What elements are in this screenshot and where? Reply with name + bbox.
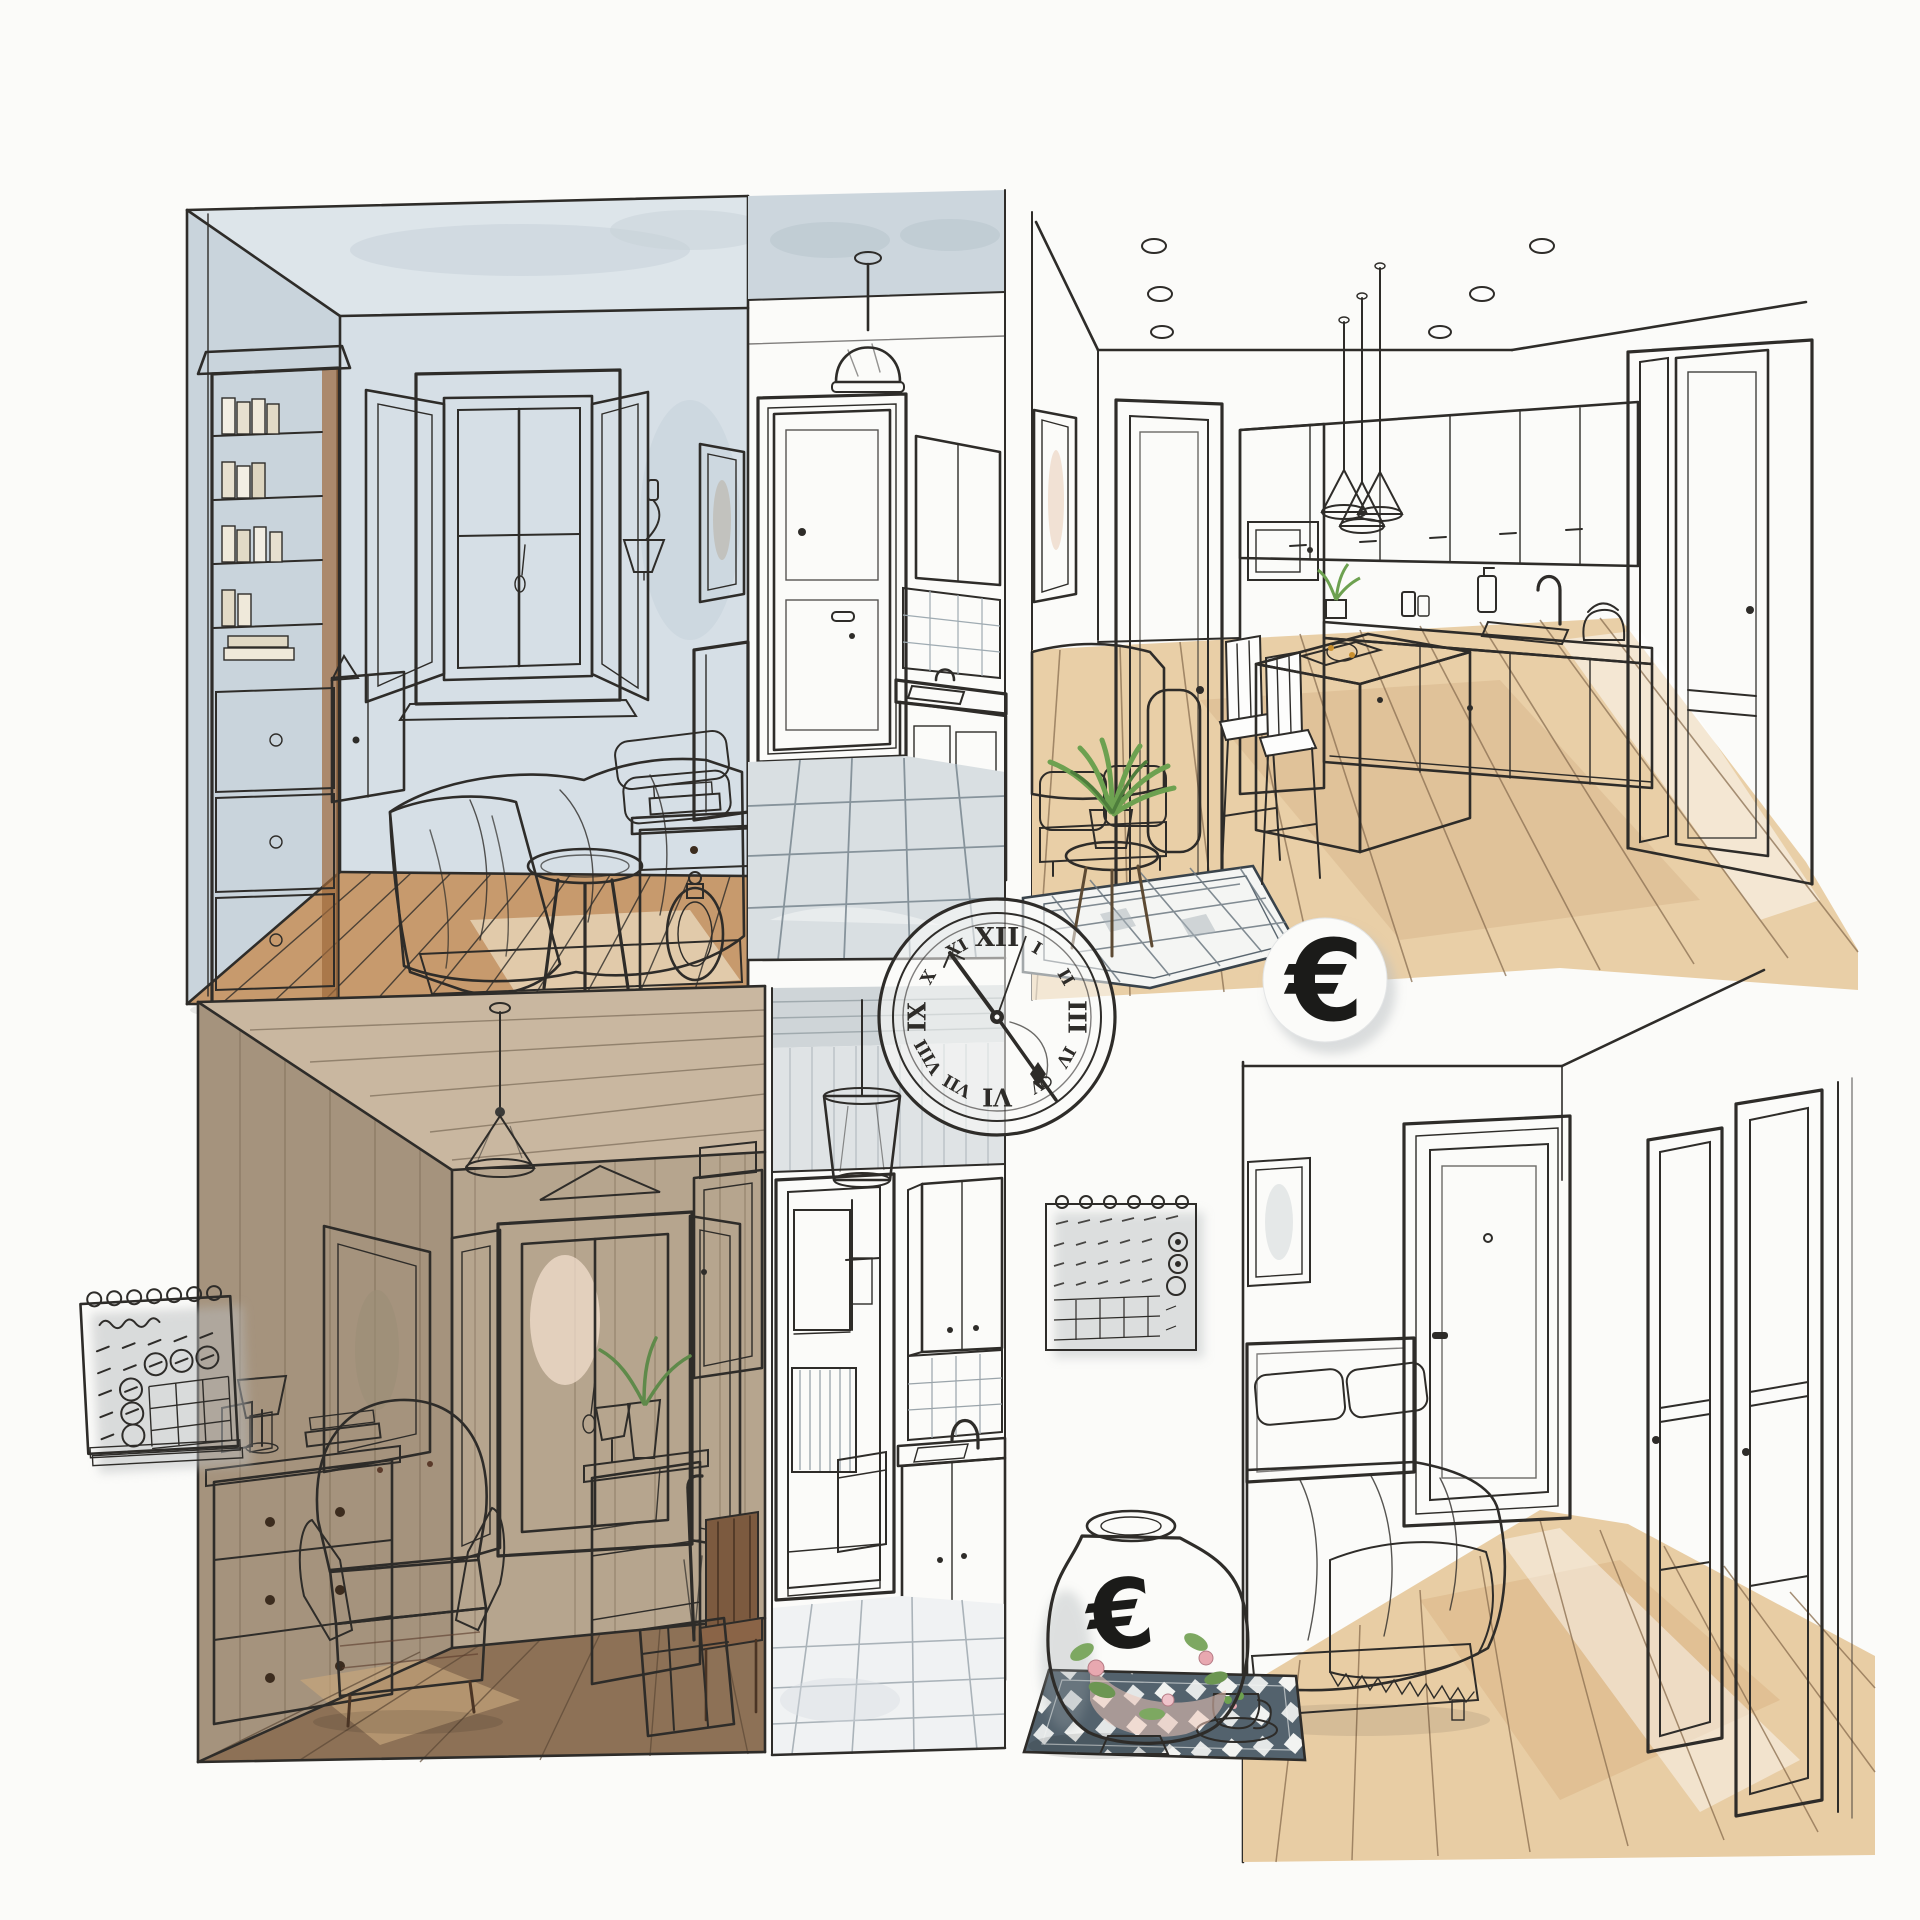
scene-old-bedroom [187,196,770,1020]
art-frame [1248,1158,1310,1286]
door-knob [1196,686,1204,694]
bookcase-side [322,368,338,1002]
svg-text:VI: VI [982,1083,1013,1112]
left-wall [187,210,340,1004]
faucet [1538,577,1560,625]
headboard [1247,1338,1414,1482]
entry-door [758,394,906,762]
scene-modern-bedroom: € [1024,970,1875,1862]
bath-doorway [776,1174,894,1600]
radiator [792,1368,856,1472]
warm-light [530,1255,600,1385]
euro-symbol: € [1283,917,1364,1047]
svg-text:III: III [1063,1000,1092,1034]
wall-clock: XII III VI IX I II IV V VII VIII X XI [879,899,1115,1135]
ceiling-wash [610,210,770,250]
scene-vintage-room [80,986,765,1762]
svg-text:IX: IX [902,1002,931,1032]
towel [850,1258,872,1304]
door-handle [1742,1448,1750,1456]
spiral-binding [1056,1196,1188,1208]
jar [1402,592,1415,616]
scene-entry-hallway [748,190,1006,1002]
bench-box [838,1452,886,1552]
recessed-lights [1142,239,1554,338]
door-handle [1652,1436,1660,1444]
scene-modern-kitchen [1023,212,1858,1000]
sink [914,1444,968,1462]
euro-symbol: € [1079,1556,1159,1675]
pillow [1254,1368,1346,1425]
illustration-canvas: € [0,0,1920,1920]
pendant-cone-lamps [1322,263,1402,533]
small-window [794,1210,850,1330]
room-shell [187,196,770,1006]
flip-calendar [80,1285,251,1474]
peephole [1484,1234,1492,1242]
herb-pot [1326,600,1346,618]
door-handle [1746,606,1754,614]
door-handle [832,612,854,621]
wall-calendar [1046,1196,1204,1358]
jar [1418,596,1429,616]
tile-backsplash [903,588,1000,678]
door-handle [1432,1332,1448,1339]
soap-bottle [1478,576,1496,612]
svg-text:XII: XII [975,923,1020,953]
art-frame [1034,410,1076,602]
peephole [798,528,806,536]
inner-floor [788,1544,880,1596]
tile-floor [772,1596,1005,1755]
